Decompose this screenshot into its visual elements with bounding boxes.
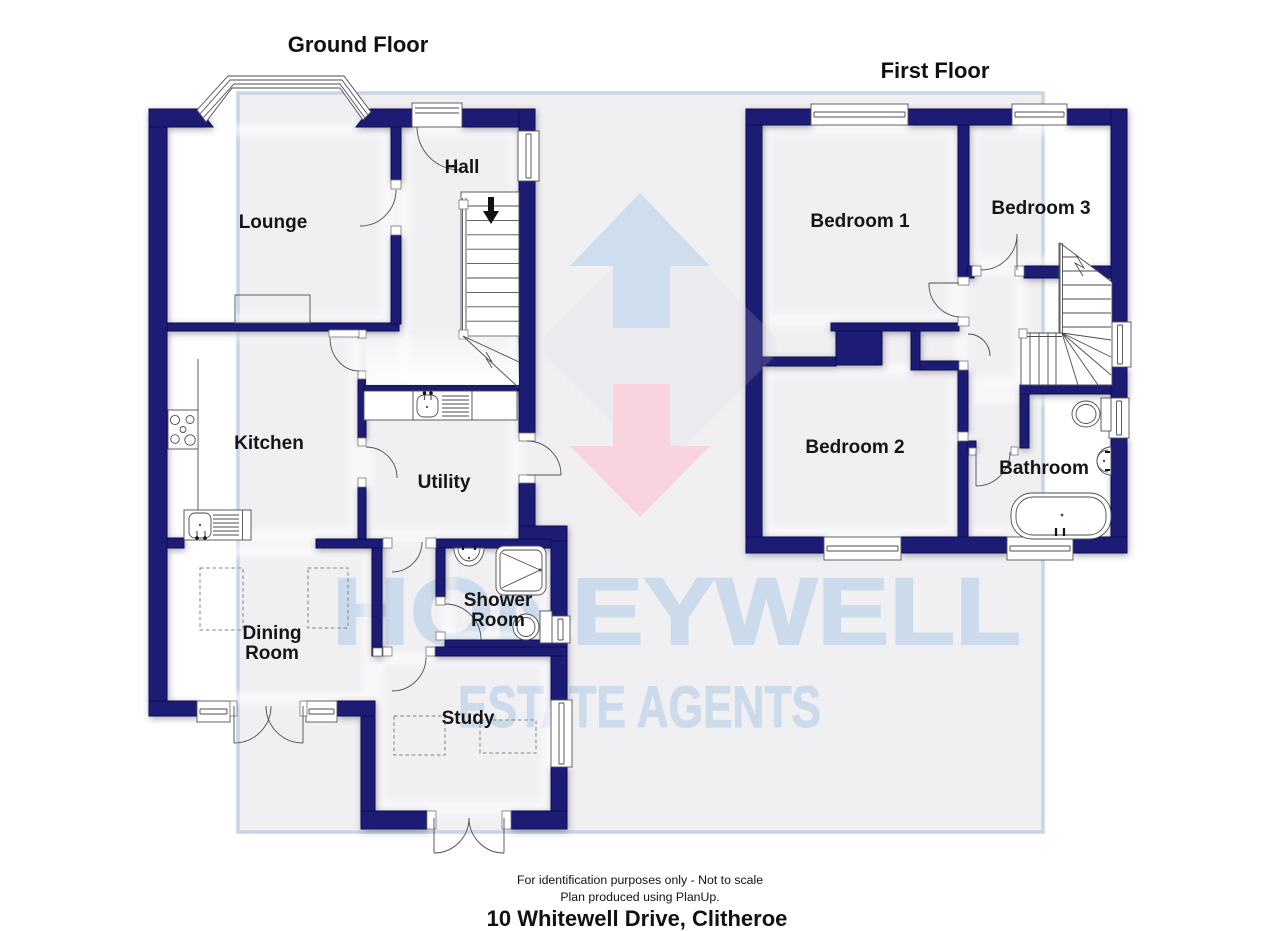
svg-text:Hall: Hall — [445, 157, 480, 178]
svg-text:Study: Study — [442, 708, 495, 729]
svg-text:Utility: Utility — [418, 472, 471, 493]
svg-text:Plan produced using PlanUp.: Plan produced using PlanUp. — [560, 890, 719, 904]
svg-text:Bathroom: Bathroom — [999, 458, 1089, 479]
svg-text:Bedroom 2: Bedroom 2 — [805, 437, 904, 458]
svg-text:Lounge: Lounge — [239, 212, 308, 233]
svg-text:Kitchen: Kitchen — [234, 433, 304, 454]
svg-text:Dining: Dining — [242, 623, 301, 644]
svg-text:Room: Room — [245, 643, 299, 664]
svg-text:Ground Floor: Ground Floor — [288, 32, 429, 57]
svg-text:For identification purposes on: For identification purposes only - Not t… — [517, 873, 763, 887]
svg-text:10 Whitewell Drive, Clitheroe: 10 Whitewell Drive, Clitheroe — [487, 906, 788, 931]
svg-text:Bedroom 3: Bedroom 3 — [991, 198, 1090, 219]
svg-text:Shower: Shower — [464, 590, 533, 611]
svg-text:ESTATE AGENTS: ESTATE AGENTS — [458, 675, 821, 740]
svg-text:Room: Room — [471, 610, 525, 631]
svg-text:Bedroom 1: Bedroom 1 — [810, 211, 910, 232]
svg-text:First Floor: First Floor — [881, 58, 990, 83]
